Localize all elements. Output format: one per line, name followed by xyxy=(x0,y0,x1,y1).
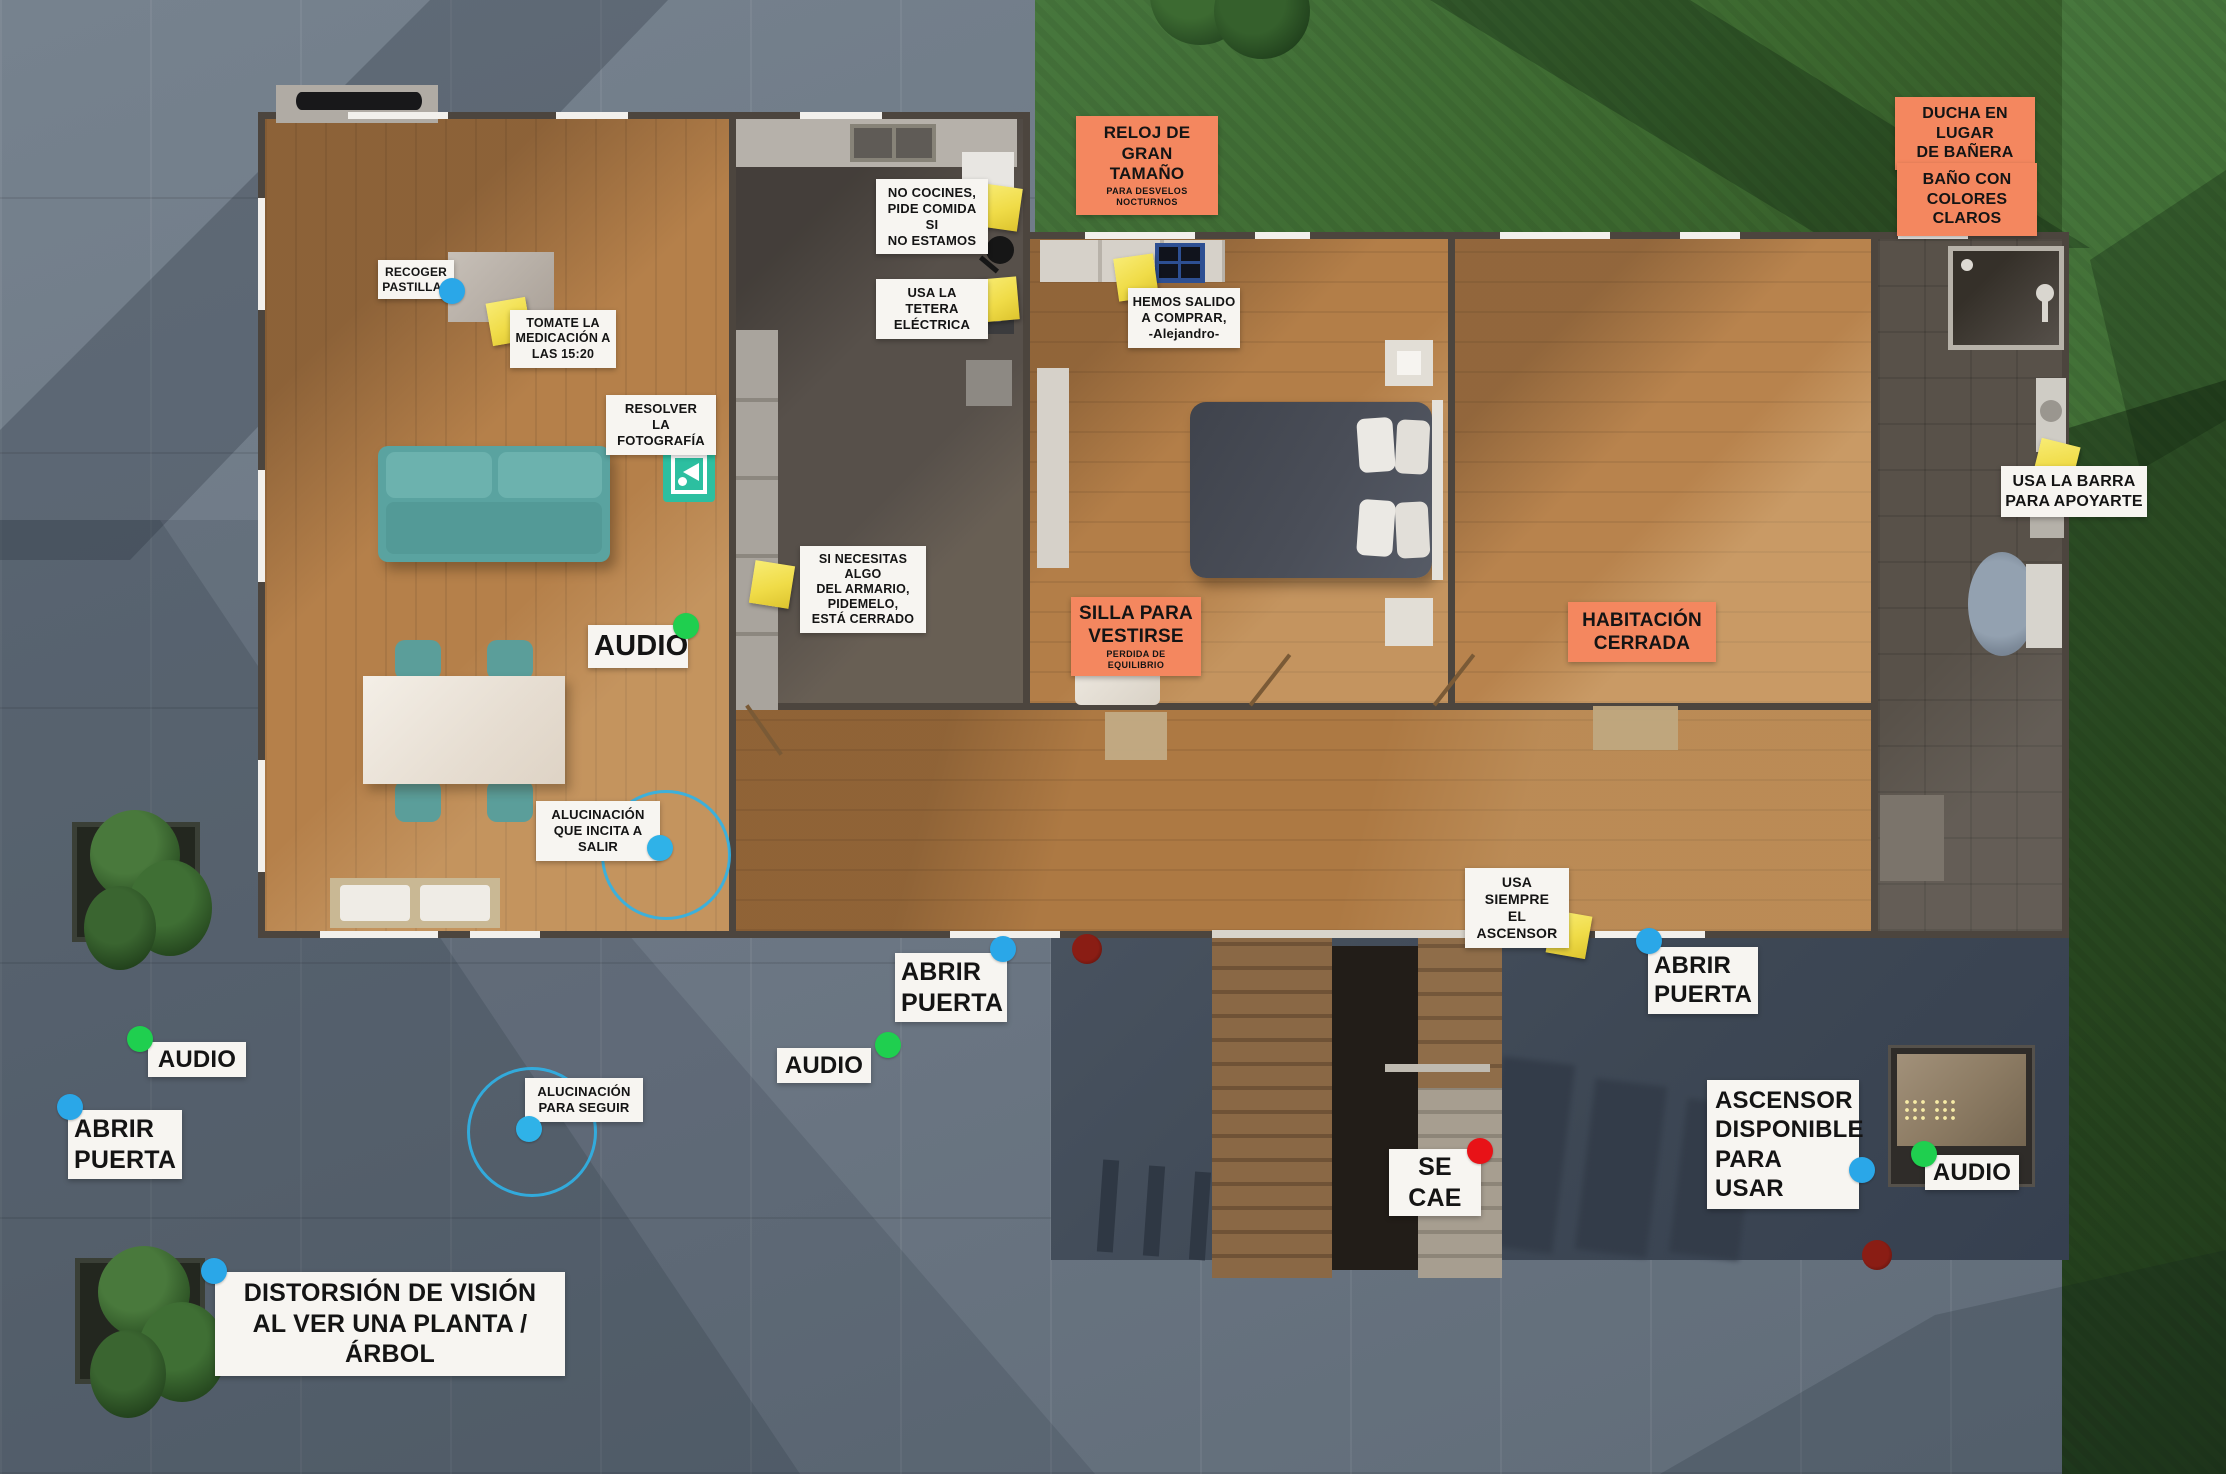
sofa xyxy=(378,446,610,562)
audio-dot-green[interactable] xyxy=(673,613,699,639)
photo-dot-glyph xyxy=(678,477,687,486)
label-subtitle: PERDIDA DE EQUILIBRIO xyxy=(1077,649,1195,671)
kitchen-counter-2 xyxy=(966,360,1012,406)
fall-dot-red[interactable] xyxy=(1467,1138,1493,1164)
dresser xyxy=(1037,368,1069,568)
label-text: NO COCINES,PIDE COMIDA SINO ESTAMOS xyxy=(880,185,984,248)
label-abrir-puerta-centro[interactable]: ABRIRPUERTA xyxy=(895,953,1007,1022)
window-marker xyxy=(800,112,882,119)
stairwell xyxy=(1212,938,1502,1278)
nightstand xyxy=(1385,598,1433,646)
toilet-tank xyxy=(2026,564,2062,648)
label-audio-izquierda[interactable]: AUDIO xyxy=(148,1042,246,1077)
kitchen-sink xyxy=(850,124,936,162)
mat-tile xyxy=(340,885,410,921)
sofa-back-cushion xyxy=(498,452,602,498)
label-ducha-en-lugar[interactable]: DUCHA EN LUGARDE BAÑERA xyxy=(1895,97,2035,170)
label-audio-derecha[interactable]: AUDIO xyxy=(1925,1155,2019,1190)
sink-basin xyxy=(854,128,892,158)
window-marker xyxy=(258,760,265,872)
floor-mat xyxy=(330,878,500,928)
red-plant xyxy=(1072,934,1102,964)
bed-duvet xyxy=(1190,402,1432,578)
window-marker xyxy=(1255,232,1310,239)
window-marker xyxy=(1500,232,1610,239)
label-bano-colores-claros[interactable]: BAÑO CONCOLORES CLAROS xyxy=(1897,163,2037,236)
stairs-left xyxy=(1212,938,1332,1278)
label-usa-tetera[interactable]: USA LA TETERAELÉCTRICA xyxy=(876,279,988,339)
pillow xyxy=(1356,499,1396,557)
label-text: AUDIO xyxy=(783,1051,865,1080)
label-text: RELOJ DE GRANTAMAÑO xyxy=(1086,123,1208,185)
window-marker xyxy=(556,112,628,119)
nightstand xyxy=(1385,340,1433,386)
bed xyxy=(1190,398,1443,582)
doormat xyxy=(1105,712,1167,760)
tree-canopy xyxy=(90,1330,166,1418)
hall-cabinet xyxy=(1880,795,1944,881)
label-text: AUDIO xyxy=(154,1045,240,1074)
bed-headboard xyxy=(1432,400,1443,580)
dining-chair xyxy=(395,640,441,680)
door-dot-blue[interactable] xyxy=(57,1094,83,1120)
sink-basin xyxy=(896,128,932,158)
label-text: USA SIEMPREEL ASCENSOR xyxy=(1469,874,1565,942)
label-text: ALUCINACIÓNPARA SEGUIR xyxy=(529,1084,639,1116)
shower-arm xyxy=(2042,300,2048,322)
note-sticky[interactable] xyxy=(749,560,795,609)
sofa-seat-cushion xyxy=(386,502,602,554)
label-subtitle: PARA DESVELOS NOCTURNOS xyxy=(1086,186,1208,208)
label-tomate-medicacion[interactable]: TOMATE LAMEDICACIÓN ALAS 15:20 xyxy=(510,310,616,368)
corridor-floor xyxy=(729,703,1878,938)
label-text: SE CAE xyxy=(1395,1152,1475,1213)
label-alucinacion-salir[interactable]: ALUCINACIÓNQUE INCITA A SALIR xyxy=(536,801,660,861)
pill-pickup-dot-blue[interactable] xyxy=(439,278,465,304)
door-dot-blue[interactable] xyxy=(1636,928,1662,954)
tree xyxy=(80,790,230,990)
audio-dot-green[interactable] xyxy=(127,1026,153,1052)
audio-dot-green[interactable] xyxy=(1911,1141,1937,1167)
label-usa-barra[interactable]: USA LA BARRAPARA APOYARTE xyxy=(2001,466,2147,517)
window-marker xyxy=(320,931,438,938)
label-text: SI NECESITAS ALGODEL ARMARIO,PIDEMELO,ES… xyxy=(804,552,922,627)
label-text: ASCENSORDISPONIBLEPARA USAR xyxy=(1715,1086,1851,1203)
label-silla-vestirse[interactable]: SILLA PARAVESTIRSE PERDIDA DE EQUILIBRIO xyxy=(1071,597,1201,676)
window-marker xyxy=(258,198,265,310)
label-no-cocines[interactable]: NO COCINES,PIDE COMIDA SINO ESTAMOS xyxy=(876,179,988,254)
dining-chair xyxy=(395,780,441,822)
label-text: AUDIO xyxy=(1931,1158,2013,1187)
label-hemos-salido[interactable]: HEMOS SALIDOA COMPRAR,-Alejandro- xyxy=(1128,288,1240,348)
label-text: RESOLVERLA FOTOGRAFÍA xyxy=(610,401,712,449)
sink-bowl xyxy=(2040,400,2062,422)
audio-dot-green[interactable] xyxy=(875,1032,901,1058)
label-text: SILLA PARAVESTIRSE xyxy=(1077,602,1195,648)
sofa-back-cushion xyxy=(386,452,492,498)
label-text: DISTORSIÓN DE VISIÓNAL VER UNA PLANTA / … xyxy=(225,1278,555,1370)
board-cell xyxy=(1159,247,1178,261)
label-text: ABRIRPUERTA xyxy=(1654,951,1752,1010)
elevator-dot-blue[interactable] xyxy=(1849,1157,1875,1183)
tree-canopy xyxy=(1214,0,1310,59)
photo-frame-glyph xyxy=(671,454,707,494)
label-resolver-fotografia[interactable]: RESOLVERLA FOTOGRAFÍA xyxy=(606,395,716,455)
label-alucinacion-seguir[interactable]: ALUCINACIÓNPARA SEGUIR xyxy=(525,1078,643,1122)
lawn-right xyxy=(2062,0,2226,1474)
window-marker xyxy=(348,112,448,119)
label-se-cae[interactable]: SE CAE xyxy=(1389,1149,1481,1216)
kitchen-cabinets xyxy=(736,330,778,710)
pillow xyxy=(1395,501,1431,559)
tree xyxy=(1150,0,1320,70)
label-armario-cerrado[interactable]: SI NECESITAS ALGODEL ARMARIO,PIDEMELO,ES… xyxy=(800,546,926,633)
dining-chair xyxy=(487,640,533,680)
pillow xyxy=(1395,419,1431,475)
board-cell xyxy=(1159,264,1178,278)
floorplan-scene: RELOJ DE GRANTAMAÑO PARA DESVELOS NOCTUR… xyxy=(0,0,2226,1474)
window-marker xyxy=(1085,232,1195,239)
label-ascensor-disponible[interactable]: ASCENSORDISPONIBLEPARA USAR xyxy=(1707,1080,1859,1209)
mat-tile xyxy=(420,885,490,921)
label-distorsion-vision[interactable]: DISTORSIÓN DE VISIÓNAL VER UNA PLANTA / … xyxy=(215,1272,565,1376)
label-text: HABITACIÓNCERRADA xyxy=(1578,609,1706,655)
label-text: TOMATE LAMEDICACIÓN ALAS 15:20 xyxy=(514,316,612,362)
dining-chair xyxy=(487,780,533,822)
window-marker xyxy=(1680,232,1740,239)
label-text: ALUCINACIÓNQUE INCITA A SALIR xyxy=(540,807,656,855)
label-habitacion-cerrada[interactable]: HABITACIÓNCERRADA xyxy=(1568,602,1716,662)
board-cell xyxy=(1181,247,1200,261)
elevator-lights xyxy=(1933,1098,1955,1120)
dining-table xyxy=(363,676,565,784)
pillow xyxy=(1356,417,1396,473)
label-text: USA LA TETERAELÉCTRICA xyxy=(880,285,984,333)
hallucination-dot-cyan[interactable] xyxy=(516,1116,542,1142)
door-dot-blue[interactable] xyxy=(990,936,1016,962)
label-audio-living[interactable]: AUDIO xyxy=(588,625,688,668)
stair-void xyxy=(1332,946,1418,1270)
label-text: ABRIRPUERTA xyxy=(74,1114,176,1175)
tree-canopy xyxy=(84,886,156,970)
label-abrir-puerta-abajo-izq[interactable]: ABRIRPUERTA xyxy=(68,1110,182,1179)
wall-board xyxy=(1155,243,1205,283)
doormat xyxy=(1593,706,1678,750)
vision-distortion-dot-blue[interactable] xyxy=(201,1258,227,1284)
elevator-lights xyxy=(1903,1098,1925,1120)
label-text: DUCHA EN LUGARDE BAÑERA xyxy=(1905,104,2025,163)
window-marker xyxy=(470,931,540,938)
hallucination-dot-cyan[interactable] xyxy=(647,835,673,861)
label-abrir-puerta-derecha[interactable]: ABRIRPUERTA xyxy=(1648,947,1758,1014)
tv xyxy=(296,92,422,110)
label-usa-siempre-ascensor[interactable]: USA SIEMPREEL ASCENSOR xyxy=(1465,868,1569,948)
red-plant xyxy=(1862,1240,1892,1270)
handrail xyxy=(1385,1064,1490,1072)
nightstand-lamp xyxy=(1397,351,1421,375)
board-cell xyxy=(1181,264,1200,278)
label-text: HEMOS SALIDOA COMPRAR,-Alejandro- xyxy=(1132,294,1236,342)
label-text: ABRIRPUERTA xyxy=(901,957,1001,1018)
label-reloj-gran-tamano[interactable]: RELOJ DE GRANTAMAÑO PARA DESVELOS NOCTUR… xyxy=(1076,116,1218,215)
window-marker xyxy=(258,470,265,582)
label-text: BAÑO CONCOLORES CLAROS xyxy=(1907,170,2027,229)
stair-railing-top xyxy=(1212,930,1502,938)
label-audio-centro[interactable]: AUDIO xyxy=(777,1048,871,1083)
shower-drain xyxy=(1961,259,1973,271)
label-text: USA LA BARRAPARA APOYARTE xyxy=(2005,472,2143,511)
label-text: AUDIO xyxy=(594,629,682,664)
pan xyxy=(986,236,1014,264)
